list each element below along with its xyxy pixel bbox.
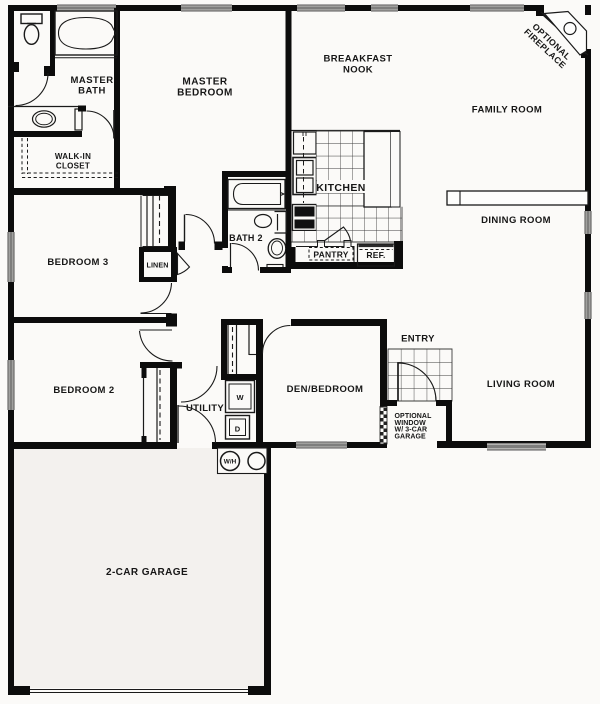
svg-text:DEN/BEDROOM: DEN/BEDROOM [287, 384, 364, 395]
svg-text:BATH: BATH [78, 86, 106, 97]
svg-text:NOOK: NOOK [343, 65, 373, 76]
svg-text:BREAAKFAST: BREAAKFAST [324, 54, 393, 65]
svg-text:MASTER: MASTER [70, 75, 113, 86]
svg-text:WALK-IN: WALK-IN [55, 152, 91, 161]
svg-text:BEDROOM 3: BEDROOM 3 [47, 257, 108, 268]
svg-text:BEDROOM: BEDROOM [177, 88, 233, 99]
svg-text:REF.: REF. [366, 250, 385, 260]
svg-text:PANTRY: PANTRY [313, 250, 348, 260]
svg-text:W: W [236, 393, 244, 402]
svg-text:2-CAR GARAGE: 2-CAR GARAGE [106, 567, 188, 578]
svg-text:W/H: W/H [224, 459, 237, 466]
svg-text:DINING ROOM: DINING ROOM [481, 215, 551, 226]
svg-text:ENTRY: ENTRY [401, 334, 435, 345]
svg-text:BATH 2: BATH 2 [229, 233, 263, 243]
svg-text:CLOSET: CLOSET [56, 162, 90, 171]
svg-text:GARAGE: GARAGE [395, 433, 427, 440]
svg-text:FAMILY ROOM: FAMILY ROOM [472, 105, 542, 116]
svg-text:LIVING ROOM: LIVING ROOM [487, 379, 555, 390]
svg-text:BEDROOM 2: BEDROOM 2 [53, 385, 114, 396]
svg-text:KITCHEN: KITCHEN [316, 182, 365, 194]
svg-text:MASTER: MASTER [182, 77, 228, 88]
svg-text:D: D [235, 425, 241, 434]
svg-text:LINEN: LINEN [146, 261, 168, 270]
